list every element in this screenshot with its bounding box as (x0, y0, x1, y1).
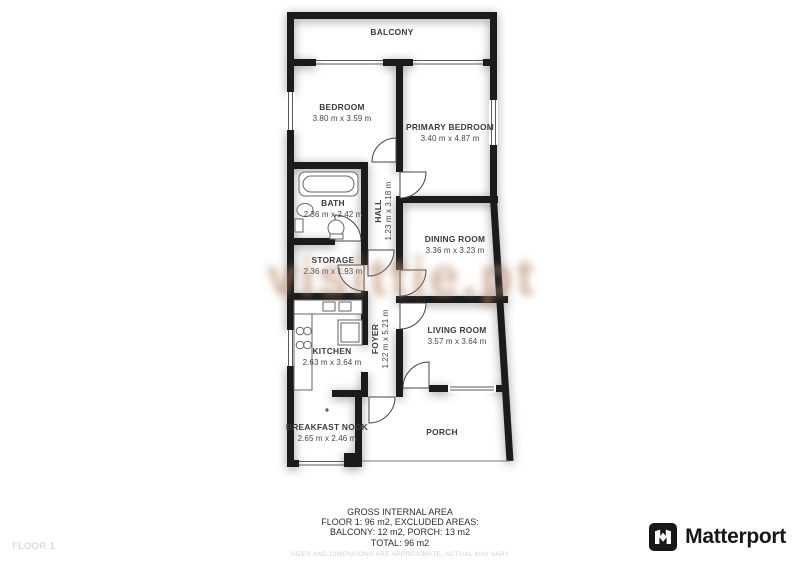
bathtub-inner (303, 176, 354, 192)
kitchen-basin (339, 302, 351, 311)
marker-cross (325, 408, 329, 412)
toilet-tank (330, 234, 343, 239)
room-dims-hall: 1.23 m x 3.18 m (384, 181, 393, 240)
summary-title: GROSS INTERNAL AREA (0, 507, 800, 517)
door-arc-porch (369, 397, 395, 423)
wall (287, 12, 294, 66)
balcony-slider (316, 61, 383, 65)
wall (287, 238, 335, 245)
room-dims-dining-room: 3.36 m x 3.23 m (426, 246, 485, 255)
kitchen-basin (323, 302, 335, 311)
room-label-living-room: LIVING ROOM (427, 325, 486, 335)
balcony-slider (413, 61, 483, 65)
matterport-wordmark: Matterport (685, 525, 786, 549)
room-dims-living-room: 3.57 m x 3.64 m (428, 337, 487, 346)
door-arc-dining (400, 270, 426, 296)
wall (494, 385, 508, 392)
wall (396, 296, 508, 303)
room-dims-primary-bedroom: 3.40 m x 4.87 m (421, 134, 480, 143)
wall (287, 59, 294, 92)
room-label-bath: BATH (321, 198, 345, 208)
room-dims-bath: 2.36 m x 2.42 m (304, 210, 363, 219)
wall (287, 460, 299, 467)
stove-burner (296, 327, 304, 335)
room-dims-breakfast-nook: 2.65 m x 2.46 m (298, 434, 357, 443)
appliance-inner (341, 323, 359, 342)
summary-disclaimer: SIZES AND DIMENSIONS ARE APPROXIMATE, AC… (0, 550, 800, 560)
wall (429, 385, 450, 392)
door-arc-living-1 (400, 303, 426, 329)
door-arc-hall (368, 250, 394, 276)
wall (344, 453, 362, 467)
wall (287, 366, 294, 467)
window (299, 462, 344, 466)
matterport-logo-icon (649, 523, 677, 551)
wall (287, 162, 368, 169)
stove-burner (296, 341, 304, 349)
room-label-hall: HALL (373, 199, 383, 222)
room-label-breakfast-nook: BREAKFAST NOOK (286, 422, 368, 432)
room-dims-kitchen: 2.63 m x 3.64 m (303, 358, 362, 367)
room-dims-bedroom: 3.80 m x 3.59 m (313, 114, 372, 123)
wall (361, 250, 368, 265)
cabinet (295, 219, 303, 232)
door-arc-living-2 (403, 362, 429, 388)
wall (396, 390, 403, 397)
room-label-storage: STORAGE (311, 255, 354, 265)
wall (361, 162, 368, 250)
wall (287, 293, 368, 300)
floor-selector-label: FLOOR 1 (12, 541, 55, 552)
room-label-primary-bedroom: PRIMARY BEDROOM (406, 122, 494, 132)
room-label-kitchen: KITCHEN (313, 346, 352, 356)
wall (494, 12, 511, 461)
wall (396, 329, 403, 390)
room-dims-foyer: 1.22 m x 5.21 m (381, 309, 390, 368)
room-label-bedroom: BEDROOM (319, 102, 365, 112)
wall (396, 196, 498, 203)
room-label-porch: PORCH (426, 427, 458, 437)
floor-plan: BALCONY BEDROOM 3.80 m x 3.59 m PRIMARY … (0, 0, 800, 566)
stove-burner (304, 327, 312, 335)
stove-burner (304, 341, 312, 349)
kitchen-counter-left (294, 314, 312, 390)
matterport-brand: Matterport (649, 523, 786, 551)
room-labels: BALCONY BEDROOM 3.80 m x 3.59 m PRIMARY … (286, 27, 494, 443)
door-arc-primary (400, 172, 426, 198)
room-dims-storage: 2.36 m x 1.93 m (304, 267, 363, 276)
door-arc-bedroom (372, 138, 396, 162)
fixtures (294, 172, 362, 412)
wall (287, 12, 497, 19)
room-label-balcony: BALCONY (370, 27, 413, 37)
wall (396, 59, 403, 172)
wall (332, 390, 368, 397)
room-label-dining-room: DINING ROOM (425, 234, 485, 244)
wall (396, 198, 403, 270)
wall (361, 372, 368, 390)
room-label-foyer: FOYER (370, 324, 380, 354)
